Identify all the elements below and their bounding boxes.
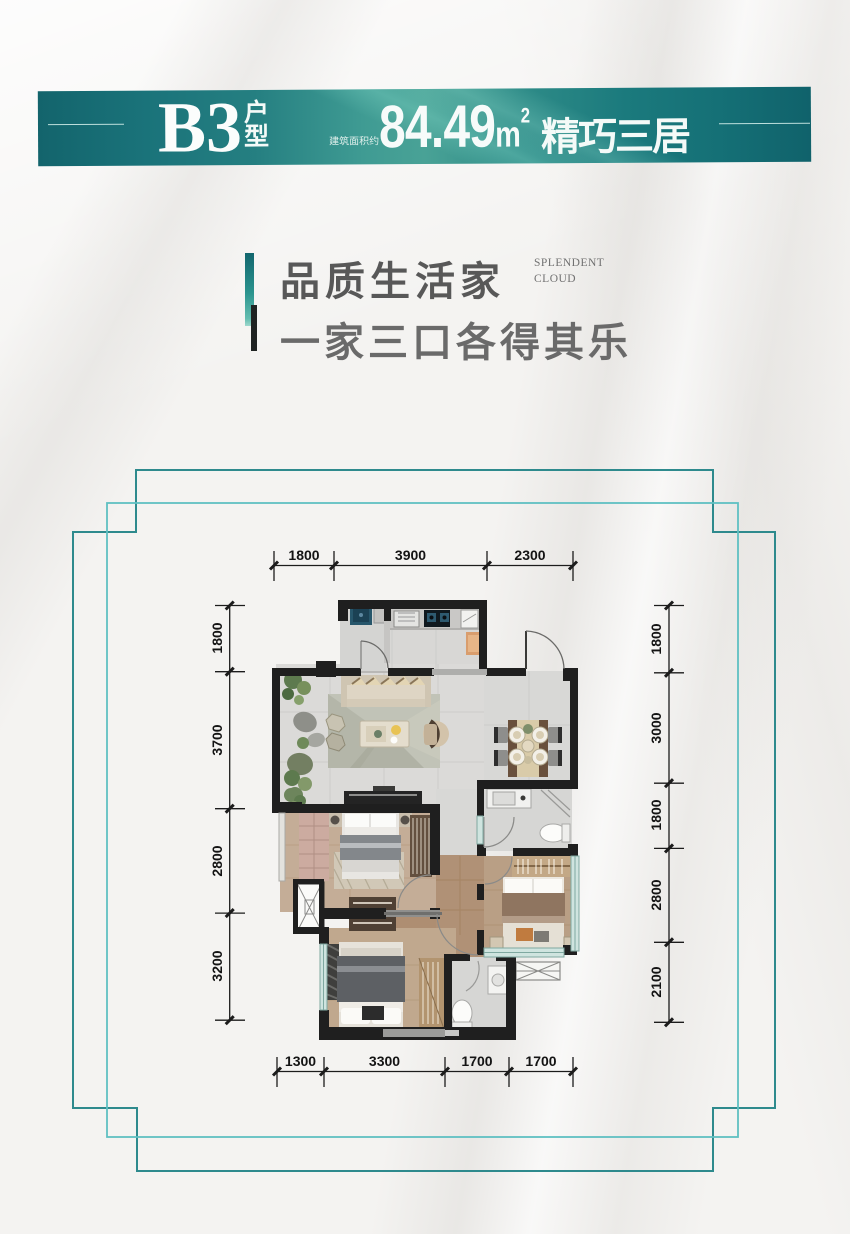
svg-text:2100: 2100 xyxy=(648,966,664,997)
svg-text:3900: 3900 xyxy=(395,547,426,563)
svg-text:3000: 3000 xyxy=(648,712,664,743)
svg-text:2800: 2800 xyxy=(648,879,664,910)
svg-text:1800: 1800 xyxy=(648,799,664,830)
svg-text:1700: 1700 xyxy=(525,1053,556,1069)
svg-text:3200: 3200 xyxy=(209,950,225,981)
svg-text:1300: 1300 xyxy=(285,1053,316,1069)
svg-text:1700: 1700 xyxy=(461,1053,492,1069)
svg-text:3300: 3300 xyxy=(369,1053,400,1069)
svg-text:2300: 2300 xyxy=(514,547,545,563)
svg-text:1800: 1800 xyxy=(648,623,664,654)
svg-text:1800: 1800 xyxy=(209,622,225,653)
svg-text:3700: 3700 xyxy=(209,724,225,755)
svg-text:2800: 2800 xyxy=(209,845,225,876)
svg-text:1800: 1800 xyxy=(288,547,319,563)
